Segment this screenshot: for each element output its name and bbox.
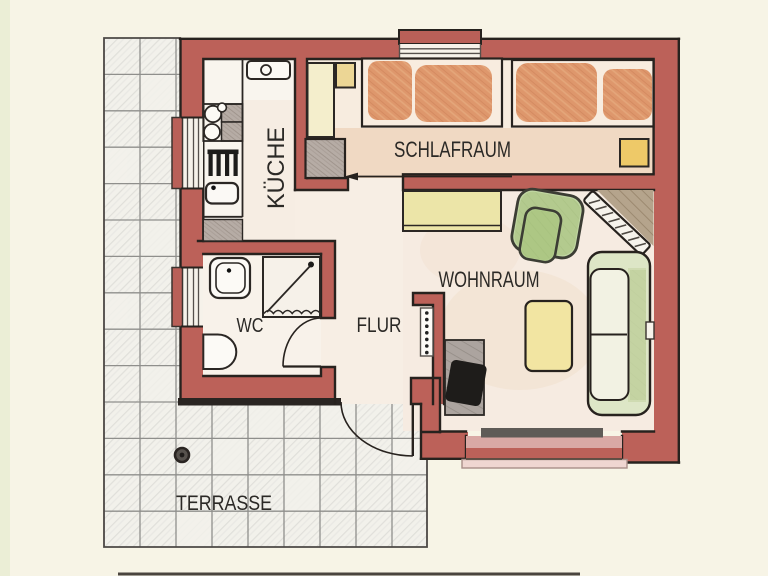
svg-text:WC: WC — [237, 315, 264, 337]
svg-text:TERRASSE: TERRASSE — [176, 492, 272, 515]
svg-text:FLUR: FLUR — [357, 314, 402, 337]
svg-text:KÜCHE: KÜCHE — [263, 127, 290, 209]
svg-text:SCHLAFRAUM: SCHLAFRAUM — [394, 137, 511, 162]
svg-text:WOHNRAUM: WOHNRAUM — [439, 267, 540, 292]
